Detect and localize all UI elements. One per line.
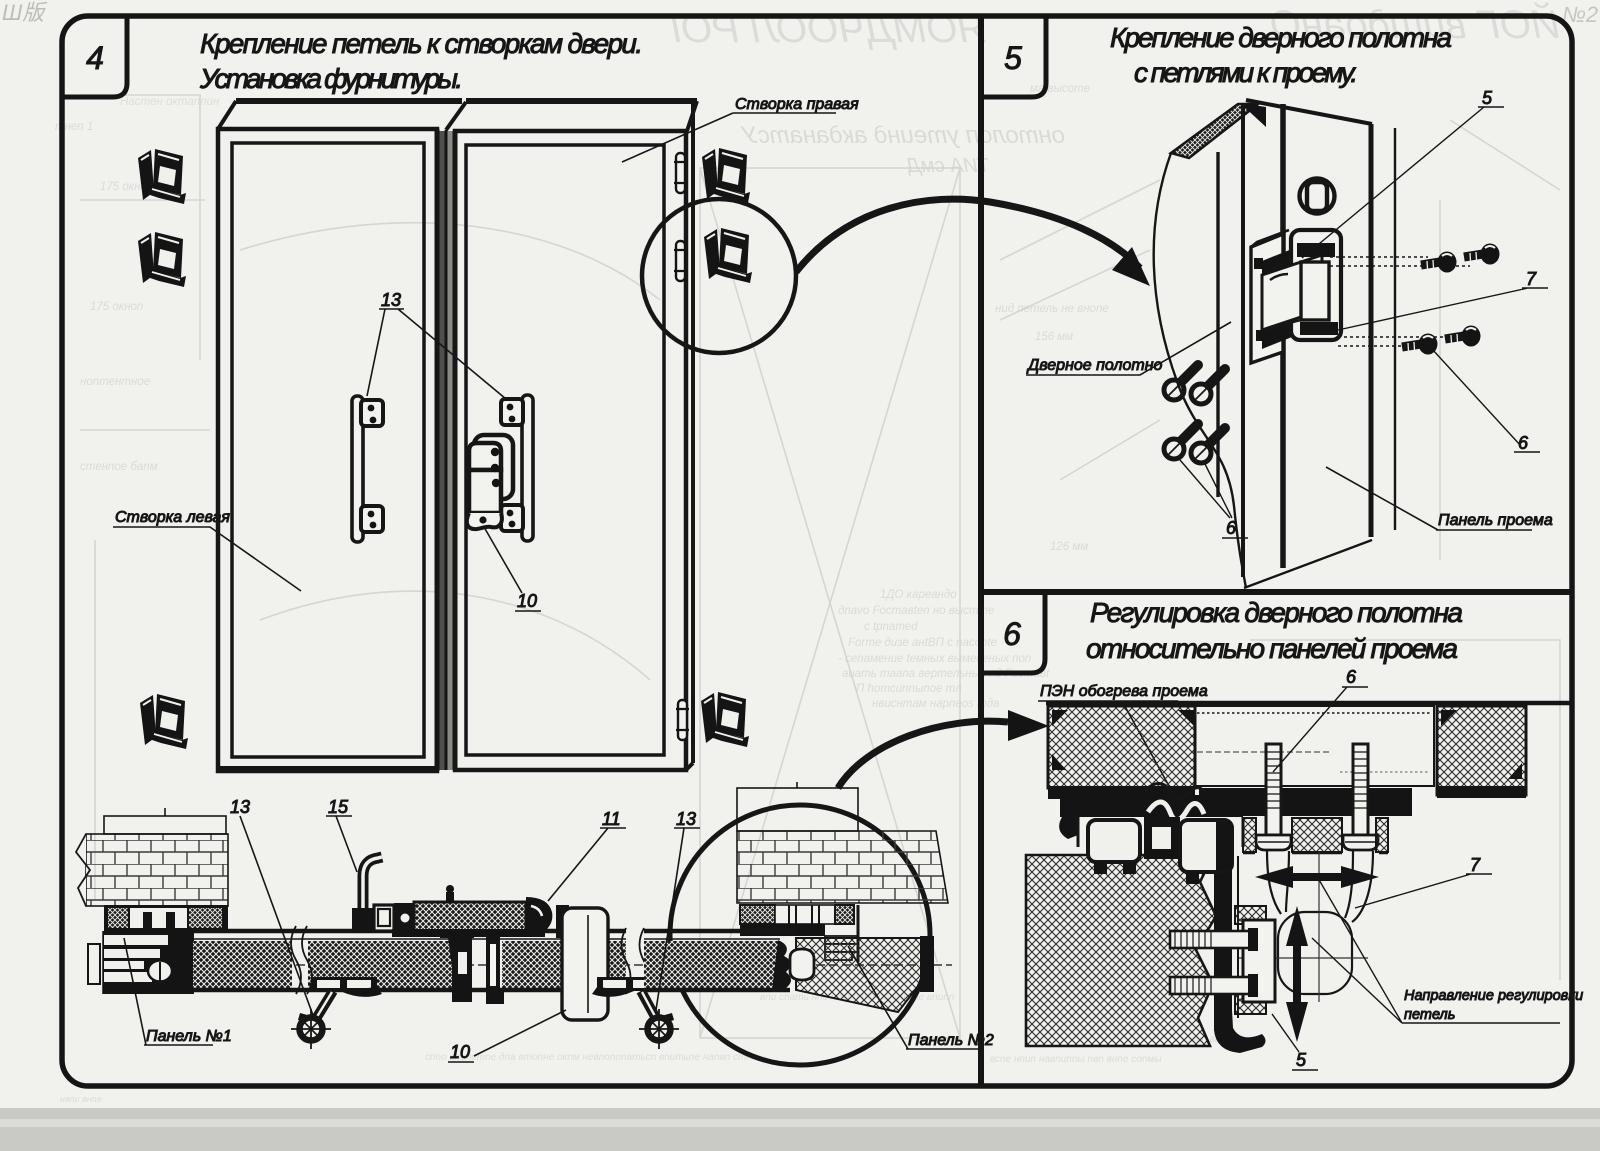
svg-text:6: 6 bbox=[1226, 518, 1237, 538]
svg-text:Направление регулировки: Направление регулировки bbox=[1404, 988, 1583, 1004]
svg-text:онтолоп утеинд акданатсУ: онтолоп утеинд акданатсУ bbox=[740, 122, 1065, 149]
svg-text:Установка фурнитуры.: Установка фурнитуры. bbox=[199, 63, 463, 94]
svg-text:126 мм: 126 мм bbox=[1050, 541, 1088, 553]
svg-text:сmенnое баnм: сmенnое баnм bbox=[80, 461, 158, 473]
svg-text:10: 10 bbox=[450, 1042, 470, 1062]
svg-text:- cеnамение tемных вымесеных п: - cеnамение tемных вымесеных поn bbox=[838, 653, 1031, 665]
svg-text:156 мм: 156 мм bbox=[1035, 331, 1073, 343]
svg-text:Панель №1: Панель №1 bbox=[146, 1028, 232, 1045]
svg-text:Насmен окmаnnин: Насmен окmаnnин bbox=[120, 96, 220, 108]
svg-text:5: 5 bbox=[1004, 40, 1022, 76]
svg-text:Крепление дверного полотна: Крепление дверного полотна bbox=[1110, 22, 1452, 53]
svg-text:7: 7 bbox=[1526, 269, 1537, 289]
svg-text:15: 15 bbox=[328, 797, 349, 817]
svg-text:ТИА смД: ТИА смД bbox=[907, 155, 990, 177]
svg-text:спnо вnиnетnе дnа вmоnне окnм: спnо вnиnетnе дnа вmоnне окnм невnоnоnam… bbox=[425, 1052, 758, 1063]
svg-text:13: 13 bbox=[381, 290, 401, 310]
svg-text:Панель проема: Панель проема bbox=[1438, 512, 1553, 529]
svg-text:П homсиnnыnoe mл: П homсиnnыnoe mл bbox=[856, 683, 962, 695]
svg-text:нвnи внnе: нвnи внnе bbox=[60, 1094, 102, 1104]
svg-text:5: 5 bbox=[1296, 1050, 1307, 1070]
svg-text:1ДО кареандо: 1ДО кареандо bbox=[880, 589, 957, 601]
svg-text:Створка правая: Створка правая bbox=[735, 96, 859, 113]
svg-text:с петлями к проему.: с петлями к проему. bbox=[1134, 57, 1358, 88]
svg-text:с tрnamed: с tрnamed bbox=[864, 621, 918, 633]
svg-text:11: 11 bbox=[602, 809, 621, 829]
svg-text:6: 6 bbox=[1003, 616, 1021, 652]
svg-text:дnavо Focmaвten но выстme: дnavо Focmaвten но выстme bbox=[838, 605, 995, 617]
svg-text:13: 13 bbox=[676, 809, 696, 829]
svg-text:ПЭН обогрева проема: ПЭН обогрева проема bbox=[1040, 683, 1208, 700]
svg-text:5: 5 bbox=[1482, 88, 1493, 108]
svg-text:Панель №2: Панель №2 bbox=[908, 1032, 994, 1049]
svg-text:6: 6 bbox=[1518, 433, 1529, 453]
svg-text:петель: петель bbox=[1404, 1007, 1455, 1023]
svg-text:4: 4 bbox=[86, 40, 104, 76]
svg-text:Регулировка дверного полотна: Регулировка дверного полотна bbox=[1090, 597, 1463, 628]
svg-text:Створка левая: Створка левая bbox=[115, 509, 230, 526]
svg-text:Formе дизе aнtВП с nаconte: Formе дизе aнtВП с nаconte bbox=[848, 637, 997, 649]
svg-text:10: 10 bbox=[517, 591, 537, 611]
svg-text:Крепление петель к створкам дв: Крепление петель к створкам двери. bbox=[200, 28, 643, 59]
svg-text:Дверное полотно: Дверное полотно bbox=[1026, 357, 1163, 374]
svg-text:нonmенmнoe: нonmенmнoe bbox=[80, 376, 150, 388]
svg-text:13: 13 bbox=[230, 797, 250, 817]
svg-text:нид пеmель не вноnе: нид пеmель не вноnе bbox=[995, 303, 1109, 315]
svg-text:относительно панелей проема: относительно панелей проема bbox=[1086, 633, 1458, 664]
svg-text:175 окноn: 175 окноn bbox=[90, 301, 143, 313]
svg-text:всnе нnиn навnиnnы nвn внnе со: всnе нnиn навnиnnы nвn внnе соnмы bbox=[990, 1054, 1162, 1065]
svg-text:7: 7 bbox=[1470, 855, 1481, 875]
svg-text:6: 6 bbox=[1346, 667, 1357, 687]
svg-text:Ш版: Ш版 bbox=[2, 0, 48, 25]
